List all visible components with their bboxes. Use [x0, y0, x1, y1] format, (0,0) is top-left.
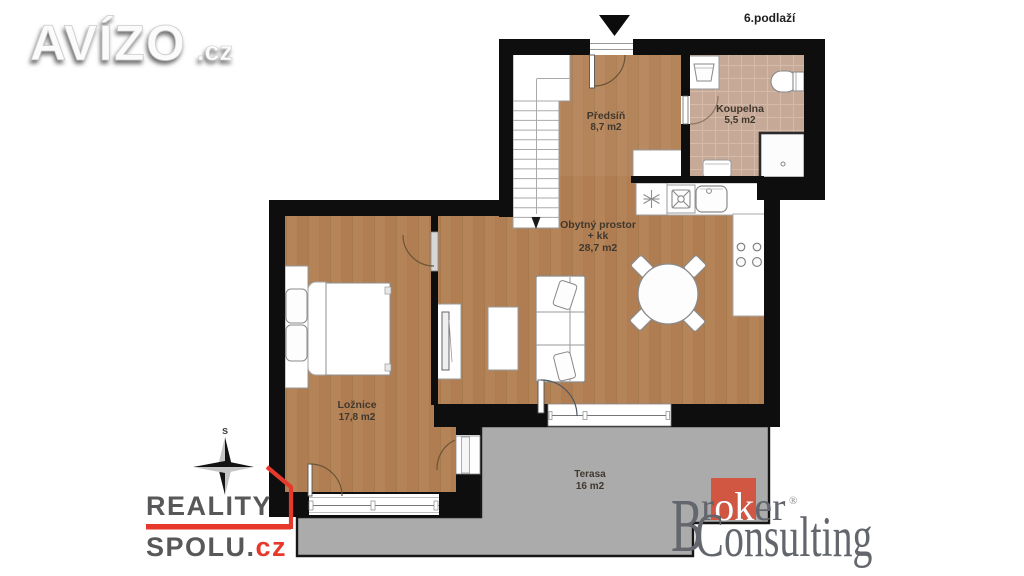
svg-text:16 m2: 16 m2: [576, 481, 605, 492]
svg-text:+ kk: + kk: [588, 230, 609, 242]
svg-text:C: C: [695, 500, 724, 570]
svg-text:6.podlaží: 6.podlaží: [744, 11, 796, 25]
svg-text:onsulting: onsulting: [724, 505, 873, 569]
svg-text:Terasa: Terasa: [574, 469, 606, 480]
svg-text:AVÍZO: AVÍZO: [30, 15, 187, 71]
svg-text:28,7 m2: 28,7 m2: [579, 242, 618, 254]
svg-text:Ložnice: Ložnice: [337, 399, 376, 411]
svg-text:s: s: [222, 425, 228, 437]
svg-text:17,8 m2: 17,8 m2: [339, 412, 376, 423]
svg-text:SPOLU.cz: SPOLU.cz: [146, 532, 287, 562]
svg-text:Koupelna: Koupelna: [716, 103, 764, 115]
svg-text:.cz: .cz: [197, 36, 233, 66]
svg-text:8,7 m2: 8,7 m2: [590, 122, 622, 133]
svg-text:REALITY: REALITY: [146, 491, 272, 521]
svg-text:5,5 m2: 5,5 m2: [724, 115, 756, 126]
svg-text:Předsíň: Předsíň: [587, 110, 626, 122]
